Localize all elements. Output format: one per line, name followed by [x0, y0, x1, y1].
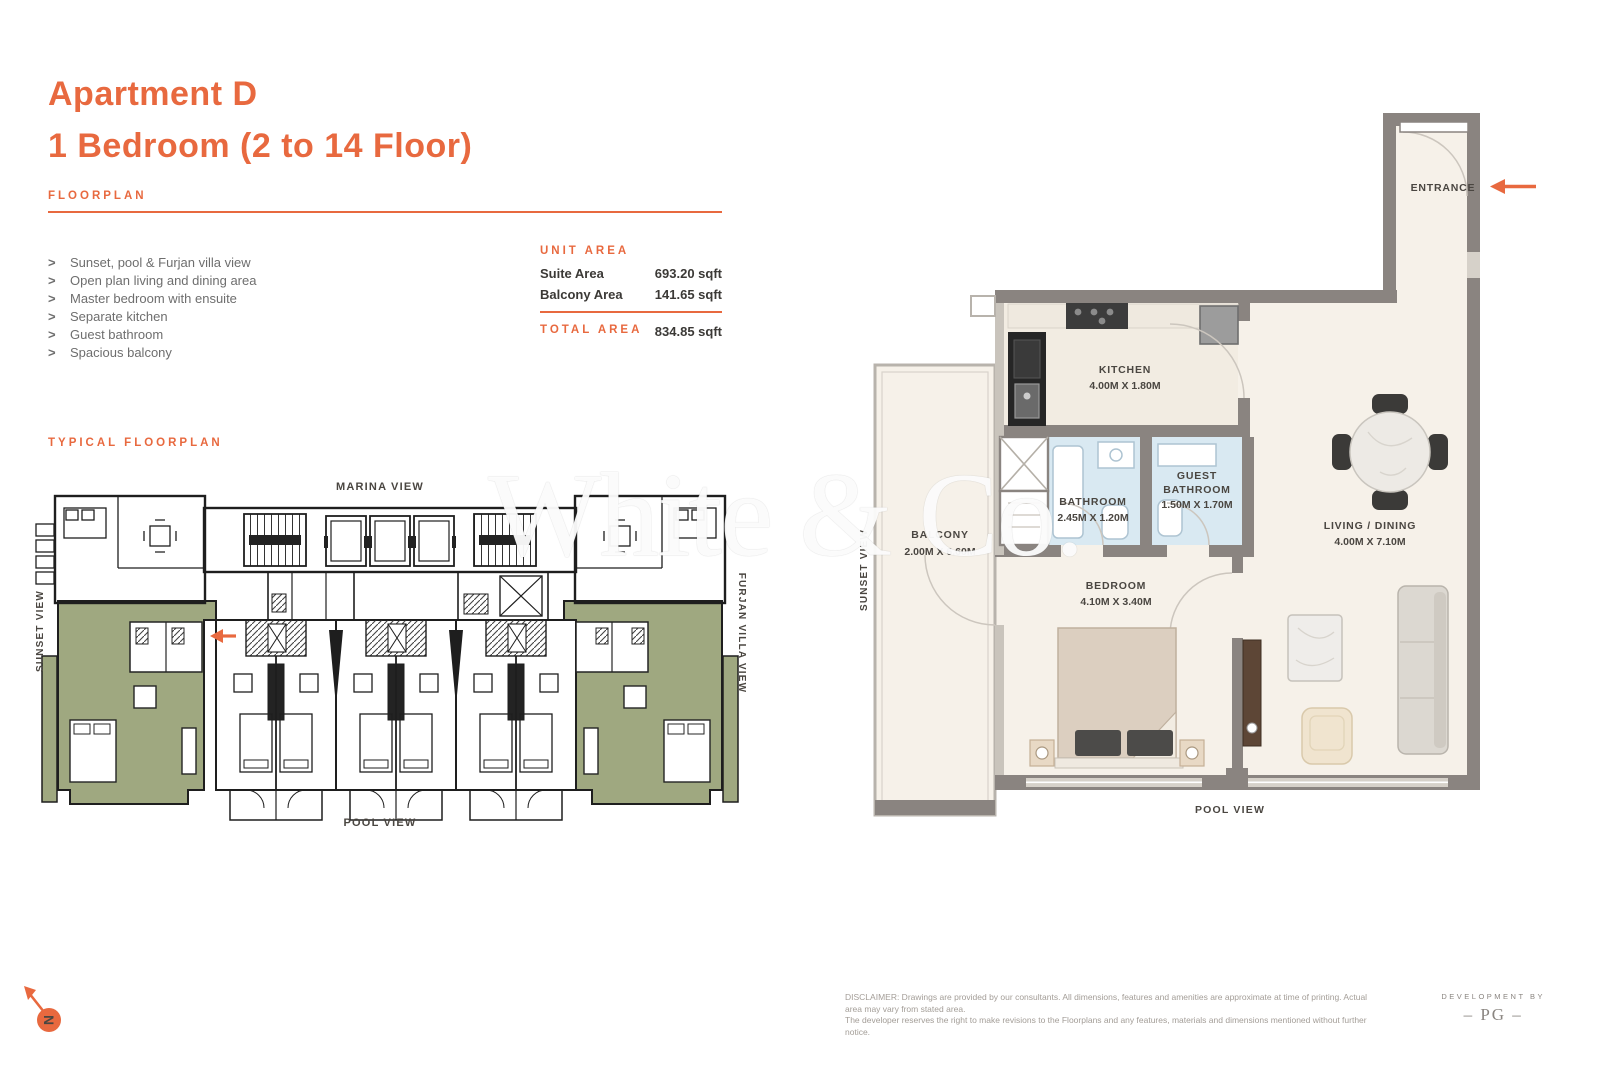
- feature-item: >Master bedroom with ensuite: [48, 293, 256, 306]
- feature-item: >Open plan living and dining area: [48, 275, 256, 288]
- feature-list: >Sunset, pool & Furjan villa view >Open …: [48, 257, 256, 365]
- orange-divider: [540, 311, 722, 313]
- feature-text: Guest bathroom: [70, 329, 163, 342]
- feature-item: >Separate kitchen: [48, 311, 256, 324]
- chevron-bullet-icon: >: [48, 275, 70, 288]
- kitchen-dims: 4.00M X 1.80M: [1089, 380, 1160, 392]
- area-label: Balcony Area: [540, 287, 623, 302]
- bathroom-label: BATHROOM: [1059, 496, 1126, 508]
- guest-bathroom-label-2: BATHROOM: [1163, 484, 1230, 496]
- kitchen-label: KITCHEN: [1099, 364, 1151, 376]
- chevron-bullet-icon: >: [48, 329, 70, 342]
- chevron-bullet-icon: >: [48, 293, 70, 306]
- corner-unit-right: [575, 496, 725, 603]
- service-rooms: [268, 572, 548, 620]
- entrance-label: ENTRANCE: [1411, 182, 1476, 194]
- title-line-2: 1 Bedroom (2 to 14 Floor): [48, 120, 472, 172]
- living-dining-label: LIVING / DINING: [1324, 520, 1417, 532]
- developer-block: DEVELOPMENT BY – PG –: [1441, 992, 1545, 1025]
- service-shaft: [1000, 437, 1048, 545]
- guest-bathroom-dims: 1.50M X 1.70M: [1161, 499, 1232, 511]
- apartment-d-floorplan-drawing: ENTRANCE KITCHEN 4.00M X 1.80M BATHROOM …: [850, 100, 1550, 840]
- disclaimer-line-1: DISCLAIMER: Drawings are provided by our…: [845, 992, 1375, 1015]
- disclaimer-line-2: The developer reserves the right to make…: [845, 1015, 1375, 1038]
- north-compass-icon: N: [18, 982, 72, 1042]
- centre-units: [216, 620, 576, 820]
- orange-rule: [48, 211, 722, 213]
- developer-logo: – PG –: [1441, 1005, 1545, 1025]
- disclaimer: DISCLAIMER: Drawings are provided by our…: [845, 992, 1375, 1038]
- living-dining-dims: 4.00M X 7.10M: [1334, 536, 1405, 548]
- feature-item: >Guest bathroom: [48, 329, 256, 342]
- entrance-door-leaf: [1400, 122, 1468, 132]
- title-line-1: Apartment D: [48, 68, 472, 120]
- floorplan-section-label: FLOORPLAN: [48, 190, 147, 202]
- compass-letter: N: [41, 1015, 57, 1025]
- chevron-bullet-icon: >: [48, 347, 70, 360]
- marina-view-label: MARINA VIEW: [336, 481, 424, 493]
- bedroom-label: BEDROOM: [1086, 580, 1146, 592]
- feature-text: Open plan living and dining area: [70, 275, 256, 288]
- typical-floorplan-label: TYPICAL FLOORPLAN: [48, 437, 223, 449]
- sunset-view-label: SUNSET VIEW: [35, 590, 46, 672]
- balcony-label: BALCONY: [911, 529, 969, 541]
- chevron-bullet-icon: >: [48, 257, 70, 270]
- chevron-bullet-icon: >: [48, 311, 70, 324]
- feature-text: Separate kitchen: [70, 311, 168, 324]
- brochure-page: Apartment D 1 Bedroom (2 to 14 Floor) FL…: [0, 0, 1600, 1066]
- total-area-label: TOTAL AREA: [540, 324, 642, 339]
- elevator-bank: [324, 516, 456, 566]
- sunset-view-label: SUNSET VIEW: [859, 529, 870, 611]
- unit-area-heading: UNIT AREA: [540, 245, 722, 257]
- balcony-dims: 2.00M X 6.60M: [904, 546, 975, 558]
- bedroom-dims: 4.10M X 3.40M: [1080, 596, 1151, 608]
- feature-text: Master bedroom with ensuite: [70, 293, 237, 306]
- area-label: Suite Area: [540, 266, 604, 281]
- table-row: Suite Area 693.20 sqft: [540, 266, 722, 281]
- unit-area-table: UNIT AREA Suite Area 693.20 sqft Balcony…: [540, 245, 722, 345]
- bathroom-dims: 2.45M X 1.20M: [1057, 512, 1128, 524]
- total-area-value: 834.85 sqft: [655, 324, 722, 339]
- feature-text: Spacious balcony: [70, 347, 172, 360]
- page-title: Apartment D 1 Bedroom (2 to 14 Floor): [48, 68, 472, 172]
- typical-floorplate-drawing: MARINA VIEW POOL VIEW SUNSET VIEW FURJAN…: [30, 468, 750, 848]
- entrance-arrow-icon: [1490, 179, 1536, 194]
- table-row: Balcony Area 141.65 sqft: [540, 287, 722, 302]
- feature-item: >Spacious balcony: [48, 347, 256, 360]
- pool-view-label: POOL VIEW: [344, 817, 417, 829]
- pool-view-label: POOL VIEW: [1195, 804, 1265, 816]
- unit-locator-arrow-icon: [210, 629, 236, 643]
- furjan-villa-view-label: FURJAN VILLA VIEW: [736, 573, 747, 694]
- area-value: 693.20 sqft: [655, 266, 722, 281]
- table-row-total: TOTAL AREA 834.85 sqft: [540, 324, 722, 339]
- feature-item: >Sunset, pool & Furjan villa view: [48, 257, 256, 270]
- area-value: 141.65 sqft: [655, 287, 722, 302]
- development-by-label: DEVELOPMENT BY: [1441, 992, 1545, 1001]
- guest-bathroom-label-1: GUEST: [1177, 470, 1217, 482]
- feature-text: Sunset, pool & Furjan villa view: [70, 257, 251, 270]
